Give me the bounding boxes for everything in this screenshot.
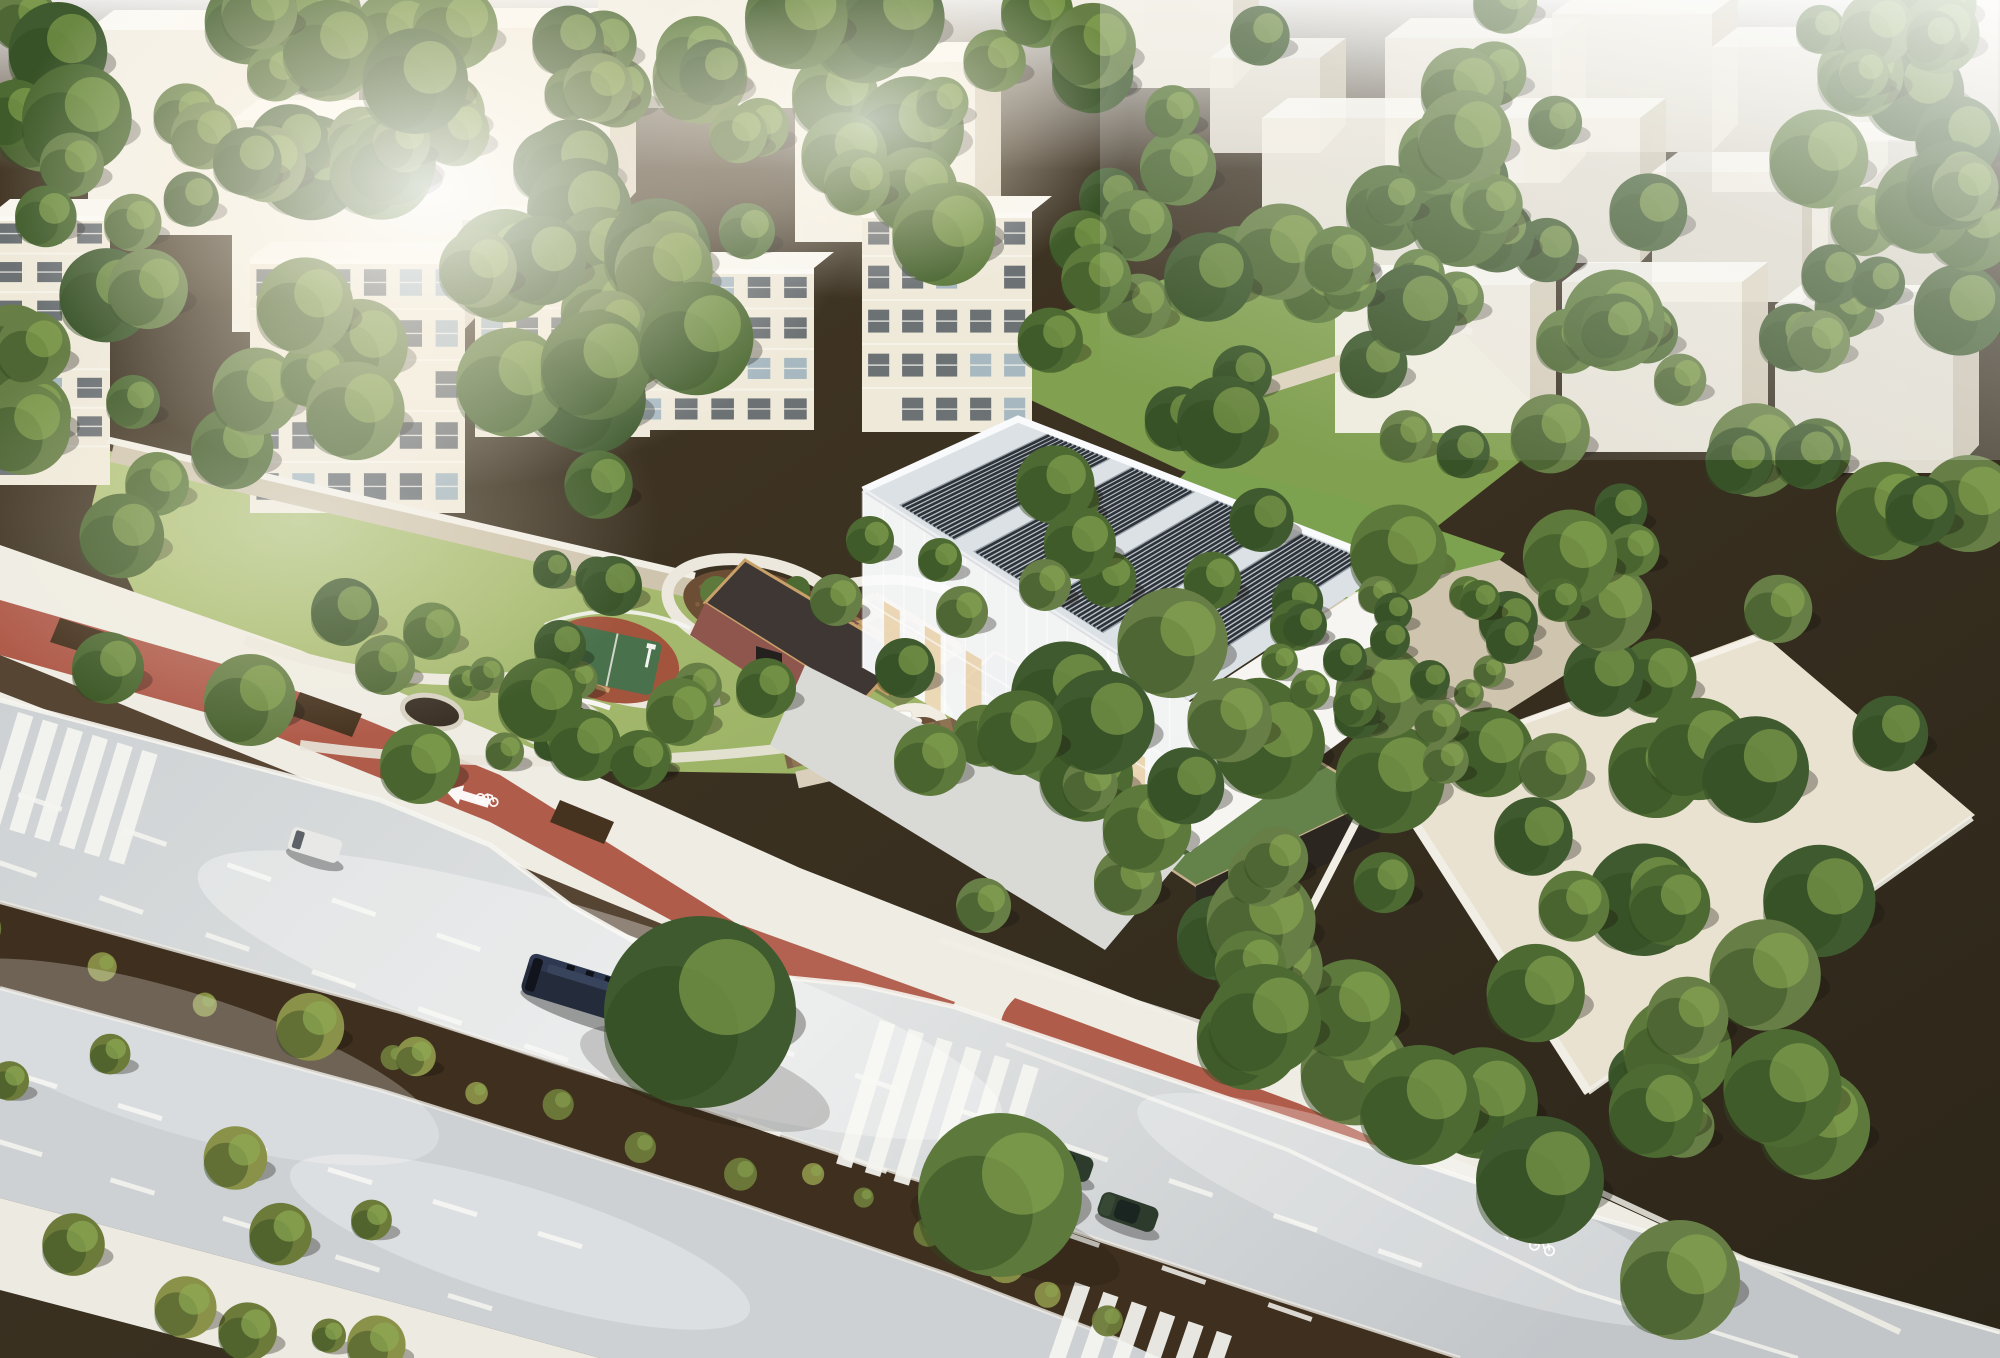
tree-canopy-light [1595,647,1635,687]
tree-canopy-light [228,1134,260,1166]
aerial-render [0,0,2000,1358]
tree-canopy-light [935,543,957,565]
tree-canopy-light [1753,933,1809,989]
tree-canopy-light [1386,625,1406,645]
tree-canopy-light [1091,683,1143,735]
tree-canopy-light [1479,718,1524,763]
tree-canopy-light [1560,521,1607,568]
tree-canopy-light [1407,1059,1467,1119]
tree-canopy-light [633,737,663,767]
tree-canopy-light [412,1041,432,1061]
tree-canopy-light [1525,807,1564,846]
tree-canopy-light [1744,729,1797,782]
tree-canopy-light [1010,700,1052,742]
render-stage [0,0,2000,1358]
tree-canopy-light [1476,585,1496,605]
tree-canopy-light [1269,834,1301,866]
tree-canopy-light [1254,496,1286,528]
tree-canopy-light [577,718,613,754]
tree-canopy-light [978,885,1005,912]
tree-canopy-light [1679,986,1720,1027]
tree-canopy-light [1526,1131,1590,1195]
tree-canopy-light [1882,705,1920,743]
median-shrub [737,1161,753,1177]
tree-canopy-light [241,1309,270,1338]
tree-canopy-light [1441,743,1464,766]
median-shrub [862,1189,872,1199]
tree-canopy-light [759,665,789,695]
tree-canopy-light [367,1205,387,1225]
tree-canopy-light [1253,977,1309,1033]
tree-canopy-light [1046,455,1085,494]
tree-canopy-light [1525,956,1574,1005]
tree-canopy-light [1300,608,1322,630]
tree-canopy-light [274,1210,305,1241]
tree-canopy-light [922,733,958,769]
tree-canopy-light [1389,597,1408,616]
tree-canopy-light [411,734,451,774]
tree-canopy-light [1555,583,1577,605]
tree-canopy-light [1432,704,1455,727]
tree-canopy-light [1807,858,1863,914]
tree-canopy-light [1350,688,1372,710]
tree-canopy-light [1388,516,1436,564]
tree-canopy-light [1648,648,1688,688]
median-shrub [811,1165,822,1176]
tree-canopy-light [982,1133,1064,1215]
tree-canopy-light [1661,874,1702,915]
tree-canopy-light [106,1039,126,1059]
tree-canopy-light [67,1221,98,1252]
tree-canopy-light [5,1066,25,1086]
tree-canopy-light [1505,622,1529,646]
tree-canopy-light [1466,683,1481,698]
seedling [695,602,699,606]
median-shrub [637,1135,653,1151]
tree-canopy-light [830,580,856,606]
median-shrub [1045,1284,1058,1297]
median-shrub [555,1092,571,1108]
tree-canopy-light [1072,516,1108,552]
tree-canopy-light [370,1323,399,1352]
tree-canopy-light [865,522,889,546]
tree-canopy-light [1913,484,1948,519]
tree-canopy-light [1667,1234,1727,1294]
tree-canopy-light [1646,1075,1693,1122]
tree-canopy-light [501,737,520,756]
tree-canopy-light [1206,558,1235,587]
tree-canopy-light [325,1323,342,1340]
tree-canopy-light [1160,601,1215,656]
median-shrub [1104,1308,1120,1324]
tree-canopy-light [1615,490,1641,516]
tree-canopy-light [1306,675,1326,695]
tree-canopy-light [956,592,982,618]
tree-canopy-light [1039,565,1065,591]
tree-canopy-light [1220,688,1262,730]
tree-canopy-light [1177,757,1216,796]
tree-canopy-light [1377,859,1407,889]
tree-canopy-light [1339,971,1390,1022]
tree-canopy-light [1566,879,1601,914]
median-shrub [99,955,114,970]
tree-canopy-light [1043,315,1076,348]
tree-canopy-light [303,1001,337,1035]
tree-canopy-light [1340,643,1362,665]
tree-canopy-light [1426,665,1446,685]
tree-canopy-light [679,939,775,1035]
tree-canopy-light [673,686,707,720]
tree-canopy-light [1771,583,1805,617]
tree-canopy-light [1770,1043,1829,1102]
tree-canopy-light [575,665,594,684]
median-shrub [474,1084,485,1095]
tree-canopy-light [179,1284,210,1315]
horizon-haze [1100,0,2000,460]
tree-canopy-light [1545,741,1579,775]
tree-canopy-light [1628,530,1654,556]
tree-canopy-light [1275,648,1293,666]
tree-canopy-light [898,645,928,675]
